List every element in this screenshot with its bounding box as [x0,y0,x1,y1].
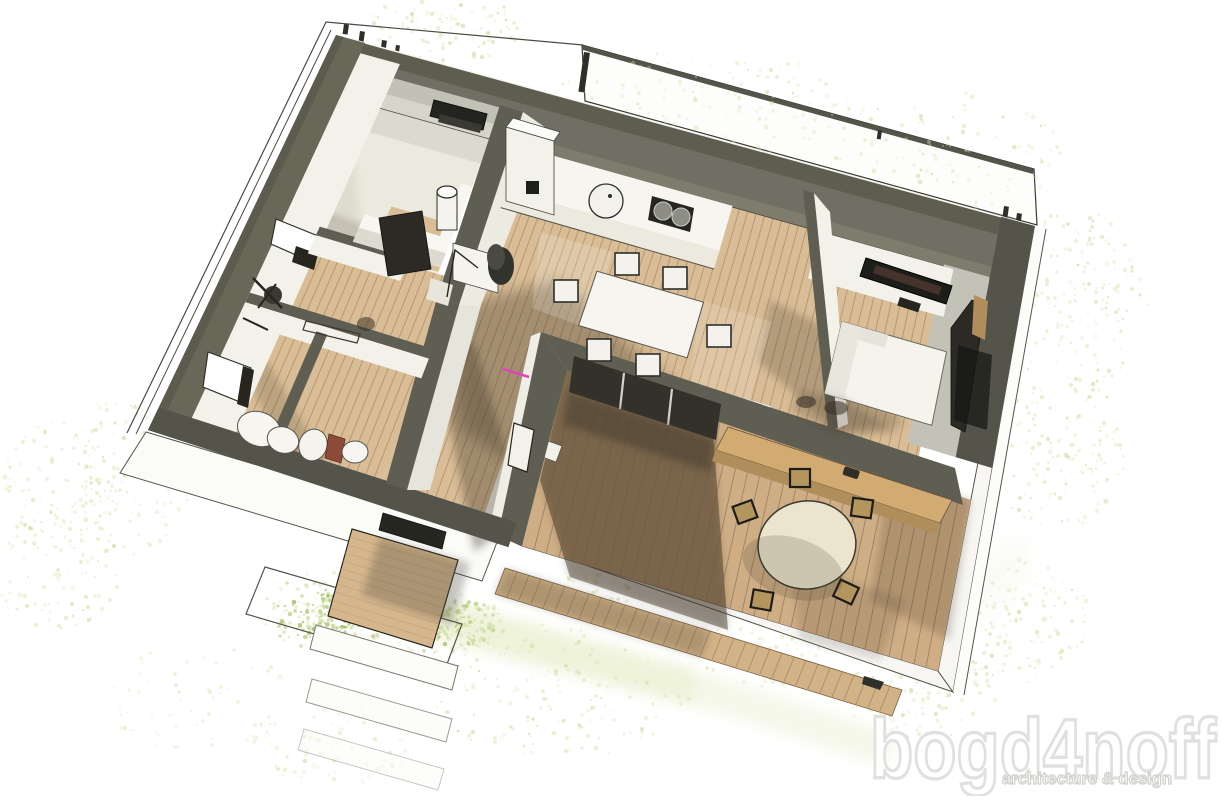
svg-text:architecture & design: architecture & design [1002,770,1172,788]
